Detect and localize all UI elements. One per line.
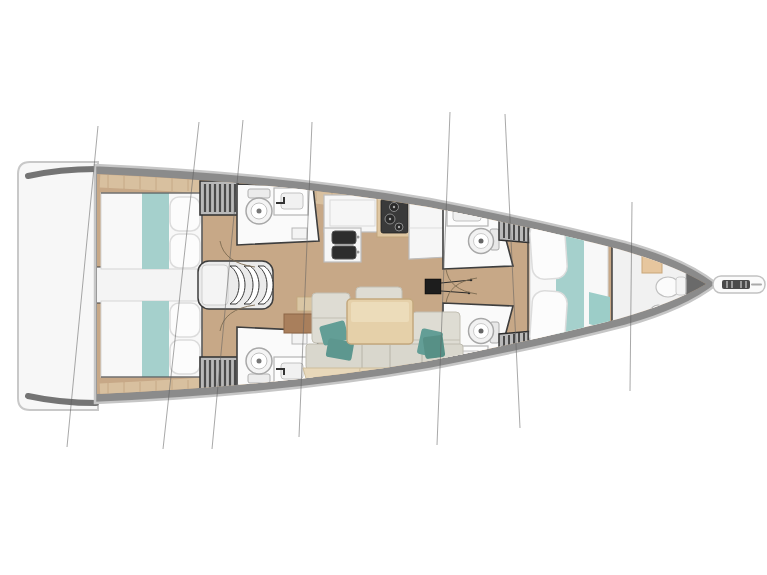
swim-platform [18,162,98,410]
companionway-steps [198,261,273,309]
throw-pillow [423,335,446,360]
pillow [170,303,200,337]
yacht-floor-plan [0,0,767,575]
berth-teal-runner [142,193,169,269]
floor-plan-canvas [0,0,767,575]
cabinet [284,314,313,333]
galley-sink-icon [332,246,356,259]
aft-corridor [95,267,202,303]
aft-cabin-starboard [101,184,202,269]
head-aft-starboard [237,184,319,245]
bowsprit [713,276,765,293]
aft-cabin-port [101,301,202,386]
galley-sink-icon [332,231,356,244]
wardrobe-aft-starboard [200,181,238,215]
berth-teal-runner [142,301,169,377]
pillow [170,197,200,231]
